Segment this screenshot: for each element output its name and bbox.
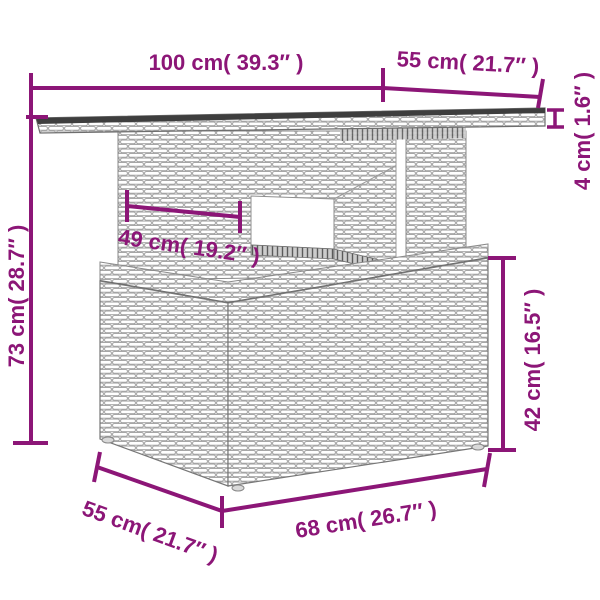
- pedestal-corner-post: [396, 131, 406, 272]
- dim-bracket-thickness: [547, 110, 564, 127]
- dim-label-top-width: 100 cm( 39.3″ ): [149, 52, 304, 74]
- base-left-face: [100, 281, 228, 486]
- foot-left: [102, 437, 114, 443]
- dim-label-tabletop-thickness: 4 cm( 1.6″ ): [572, 72, 594, 190]
- dim-line-top-depth: [383, 88, 540, 97]
- foot-right: [472, 444, 484, 450]
- foot-front: [232, 485, 244, 491]
- pedestal-opening: [251, 196, 334, 249]
- dim-label-base-height: 42 cm( 16.5″ ): [522, 289, 544, 432]
- table-illustration: [36, 108, 545, 491]
- dimension-diagram: 100 cm( 39.3″ ) 55 cm( 21.7″ ) 4 cm( 1.6…: [0, 0, 600, 600]
- dim-tick-top-depth-end: [538, 79, 543, 108]
- dim-label-total-height: 73 cm( 28.7″ ): [6, 225, 28, 368]
